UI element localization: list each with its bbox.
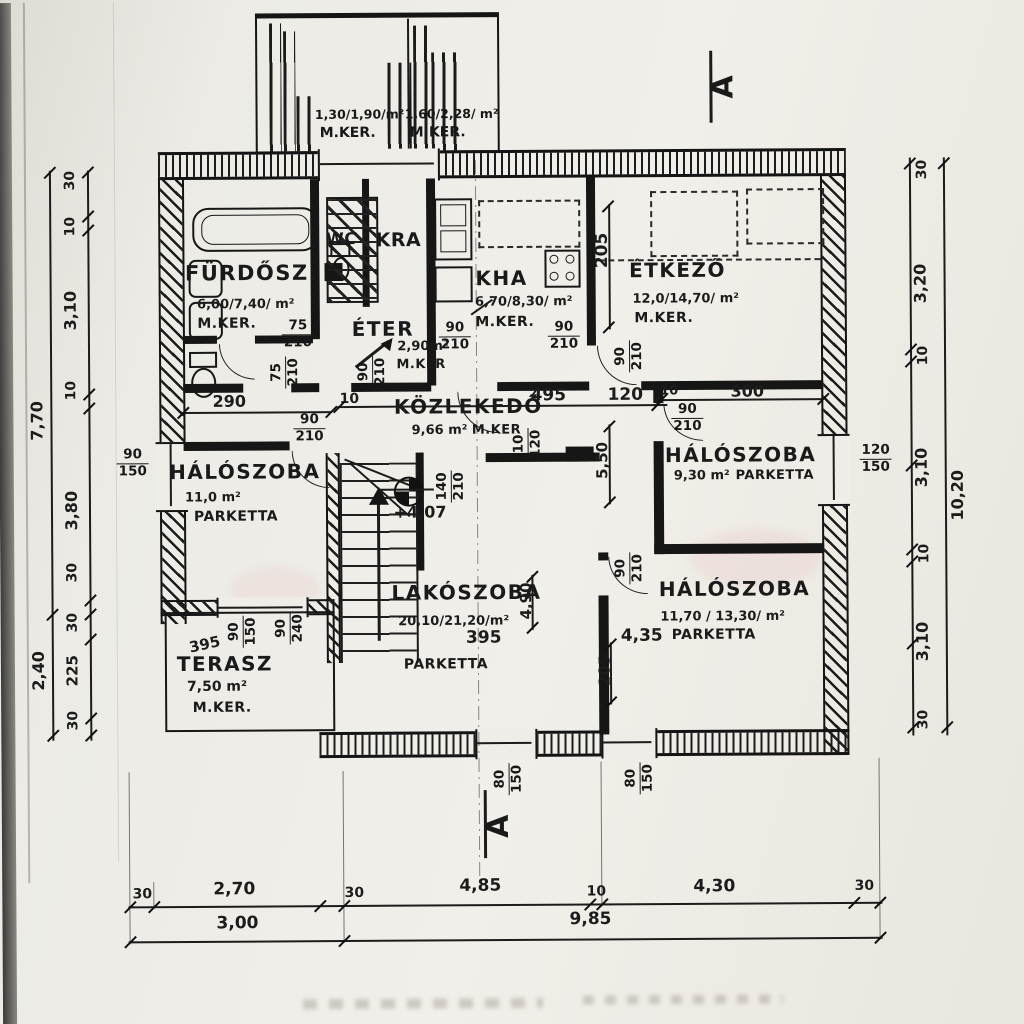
window-right-glass (833, 436, 835, 500)
dim-490: 4,90 (519, 582, 534, 619)
door-swing (219, 344, 255, 380)
dim-bottom-6: 30 (855, 879, 875, 893)
balcony-railing (269, 23, 282, 151)
dim-bottom-4: 10 (587, 884, 607, 898)
stove-burner (549, 255, 558, 264)
dim-10-120-rot: 10120 (512, 430, 542, 458)
ext-line (343, 771, 345, 943)
room-etkezo-floor: M.KER. (634, 311, 693, 325)
dim-left-3: 10 (64, 381, 78, 401)
room-furdosz-floor: M.KER. (197, 317, 256, 331)
dining-furniture-dashed (650, 191, 738, 258)
dim-door-90-210: 90210 (673, 403, 701, 433)
room-halo-right: HÁLÓSZOBA (665, 444, 817, 465)
balcony-left-area: 1,30/1,90/m² (315, 108, 404, 121)
room-terasz-area: 7,50 m² (187, 680, 247, 694)
pencil-note (303, 998, 543, 1009)
dim-bottom-total-0: 3,00 (216, 915, 258, 932)
dim-terrace-2: 30 (66, 711, 80, 731)
partition (184, 441, 290, 451)
dim-terrace-1: 225 (65, 655, 80, 686)
dim-terrace-90-150-rot: 90150 (228, 617, 258, 645)
room-eter-floor: M.KER (396, 358, 445, 371)
dim-left-5: 30 (65, 563, 79, 583)
floor-plan-scan: 1,30/1,90/m² M.KER. 1,60/2,28/ m² M.KER.… (0, 0, 1024, 1024)
room-kha-area: 6,70/8,30/ m² (475, 295, 572, 309)
wall-left (158, 178, 187, 624)
stove-burner (550, 272, 559, 281)
dim-bottom-5: 4,30 (693, 878, 735, 895)
wall-top (158, 148, 846, 180)
room-terasz-floor: M.KER. (193, 701, 252, 715)
dim-window-80-150-rot: 80150 (494, 765, 524, 793)
dim-door-90-210-rot: 90210 (357, 358, 387, 386)
pencil-note (583, 994, 783, 1004)
level-mark-value: +4,07 (394, 504, 447, 520)
floor-plan: 1,30/1,90/m² M.KER. 1,60/2,28/ m² M.KER.… (0, 0, 1024, 1024)
room-halo-right-area: 9,30 m² (674, 469, 730, 482)
dim-bottom-0: 30 (133, 887, 153, 901)
room-halo-bottom-width: 4,35 (621, 628, 663, 645)
dim-290: 290 (213, 394, 247, 410)
room-etkezo: ÉTKEZŐ (629, 260, 726, 281)
room-kozlekedo-area: 9,66 m² (412, 424, 468, 437)
dim-205-top: 205 (594, 233, 611, 269)
room-etkezo-area: 12,0/14,70/ m² (632, 292, 739, 306)
dim-right-4: 10 (917, 544, 931, 564)
ext-line (879, 758, 881, 940)
dim-bottom-2: 30 (345, 886, 365, 900)
dim-bottom-1: 2,70 (213, 881, 255, 898)
dim-bottom-3: 4,85 (459, 878, 501, 895)
balcony-right-floor: M.KER. (410, 125, 466, 139)
wall-bottom (319, 729, 849, 758)
room-lakoszoba-floor: PARKETTA (404, 657, 488, 672)
dim-line (49, 171, 54, 741)
dim-right-1: 3,20 (912, 264, 928, 304)
kitchen-fridge (434, 266, 472, 302)
dim-door-75-210-rot: 75210 (270, 358, 300, 386)
dim-window-90-150: 90150 (119, 448, 147, 478)
dim-300: 300 (731, 383, 765, 399)
kitchen-counter-dashed (478, 200, 580, 249)
room-halo-bottom-area: 11,70 / 13,30/ m² (660, 610, 785, 624)
dim-205-bottom: 205 (597, 655, 612, 686)
balcony-right-area: 1,60/2,28/ m² (405, 108, 499, 121)
room-kha-floor: M.KER. (475, 315, 534, 329)
dim-door-90-210-rot: 90210 (614, 554, 644, 582)
kitchen-sink-basin (440, 230, 466, 252)
stove-burner (565, 255, 574, 264)
room-halo-bottom-floor: PARKETTA (672, 628, 756, 643)
dim-bottom-total-1: 9,85 (569, 911, 611, 928)
dim-left-total: 7,70 (29, 401, 45, 441)
dim-line (943, 157, 949, 735)
balcony-left-floor: M.KER. (320, 126, 376, 140)
dim-window-80-150-rot: 80150 (625, 764, 655, 792)
room-halo-left-area: 11,0 m² (185, 491, 241, 504)
toilet-tank (189, 352, 217, 368)
window-bottom-2-glass (603, 741, 651, 743)
room-halo-left: HÁLÓSZOBA (169, 461, 321, 482)
dim-terrace-0: 30 (66, 613, 80, 633)
dim-left-2: 3,10 (63, 291, 79, 331)
room-lakoszoba-area: 20,10/21,20/m² (398, 615, 509, 629)
room-halo-right-floor: PARKETTA (736, 469, 815, 482)
dim-door-90-210: 90210 (550, 321, 578, 351)
dim-line (128, 902, 882, 909)
dim-495: 495 (530, 387, 566, 404)
room-halo-left-floor: PARKETTA (194, 509, 278, 524)
dim-door-140-210-rot: 140210 (436, 472, 466, 500)
section-marker-bottom: A (484, 814, 514, 838)
dim-right-total: 10,20 (950, 470, 966, 521)
dim-terrace-total: 2,40 (31, 651, 47, 691)
dim-120: 120 (607, 387, 643, 404)
room-kha: KHA (475, 268, 527, 288)
wc-toilet-bowl (332, 257, 349, 281)
partition (654, 441, 665, 554)
room-wc: WC (326, 231, 356, 247)
dim-line (129, 937, 883, 944)
room-lakoszoba-width: 395 (466, 630, 502, 647)
dim-door-75-210: 75210 (284, 319, 312, 349)
room-furdosz: FÜRDŐSZ. (185, 263, 318, 285)
bathtub-inner (201, 214, 309, 245)
room-halo-bottom: HÁLÓSZOBA (659, 578, 811, 599)
balcony-railing (283, 31, 296, 151)
scan-edge-shadow (0, 3, 17, 1024)
dim-line (87, 171, 92, 741)
kitchen-sink-basin (440, 204, 466, 226)
partition (598, 552, 608, 560)
balcony-railing (296, 96, 314, 151)
room-eter: ÉTER (352, 319, 414, 339)
partition (654, 543, 824, 554)
level-mark-line (380, 488, 434, 490)
dim-left-1: 10 (63, 217, 77, 237)
dim-window-120-150: 120150 (861, 444, 889, 474)
pillar (566, 447, 594, 462)
dim-door-90-210: 90210 (295, 413, 323, 443)
window-bottom-1-glass (477, 742, 531, 744)
dim-left-4: 3,80 (64, 491, 80, 531)
dim-right-3: 3,10 (914, 448, 930, 488)
room-furdosz-area: 6,00/7,40/ m² (197, 298, 294, 312)
dim-terrace-90-240-rot: 90240 (275, 614, 305, 642)
stove-burner (566, 272, 575, 281)
dim-right-2: 10 (916, 346, 930, 366)
dim-door-90-210: 90210 (441, 321, 469, 351)
section-marker-top: A (708, 75, 738, 99)
dim-door-90-210-rot: 90210 (614, 342, 644, 370)
dim-right-5: 3,10 (915, 622, 931, 662)
dim-right-6: 30 (916, 710, 930, 730)
room-kra: KRA (376, 231, 422, 250)
partition (310, 179, 320, 339)
dining-furniture-dashed (746, 188, 824, 244)
paper-crease (113, 2, 119, 862)
dim-right-0: 30 (915, 160, 929, 180)
dim-left-0: 30 (63, 171, 77, 191)
ext-line (129, 772, 131, 944)
dim-550: 5,50 (595, 442, 610, 479)
paper-crease (23, 3, 30, 883)
